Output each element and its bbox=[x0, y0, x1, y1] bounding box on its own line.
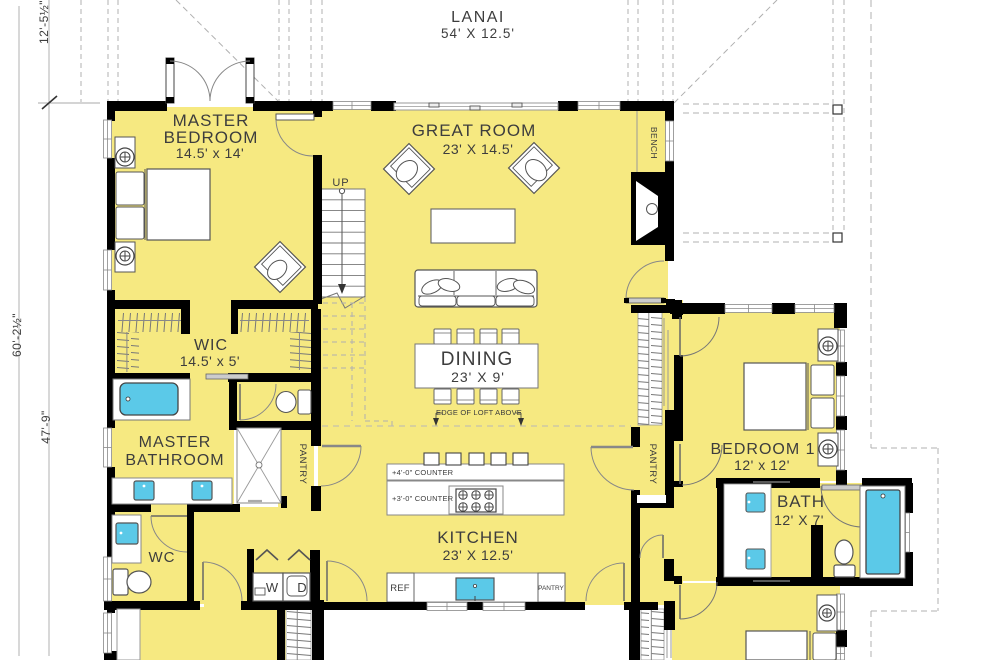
svg-text:D: D bbox=[297, 580, 306, 595]
svg-text:DINING: DINING bbox=[441, 349, 514, 370]
svg-text:LANAI: LANAI bbox=[451, 9, 505, 26]
svg-text:BATH: BATH bbox=[777, 492, 825, 511]
svg-text:12'-5½": 12'-5½" bbox=[37, 0, 51, 44]
svg-text:+3'-0" COUNTER: +3'-0" COUNTER bbox=[392, 494, 454, 503]
svg-text:47'-9": 47'-9" bbox=[39, 410, 53, 444]
svg-text:REF: REF bbox=[390, 583, 410, 594]
svg-text:BEDROOM 1: BEDROOM 1 bbox=[710, 441, 815, 458]
svg-text:WIC: WIC bbox=[194, 337, 228, 354]
svg-text:GREAT ROOM: GREAT ROOM bbox=[412, 121, 537, 140]
svg-text:PANTRY: PANTRY bbox=[297, 444, 308, 485]
svg-text:WC: WC bbox=[149, 549, 176, 566]
svg-text:12' x 12': 12' x 12' bbox=[734, 457, 790, 473]
svg-text:UP: UP bbox=[332, 177, 349, 189]
svg-text:PANTRY: PANTRY bbox=[538, 585, 564, 592]
svg-text:MASTER: MASTER bbox=[139, 434, 212, 451]
svg-text:14.5' x 14': 14.5' x 14' bbox=[176, 145, 244, 161]
svg-text:W: W bbox=[266, 580, 279, 595]
svg-text:BATHROOM: BATHROOM bbox=[125, 452, 224, 469]
svg-text:BENCH: BENCH bbox=[649, 127, 659, 159]
svg-text:12' X 7': 12' X 7' bbox=[774, 512, 824, 528]
svg-text:23' X 14.5': 23' X 14.5' bbox=[443, 141, 514, 157]
svg-text:14.5' x 5': 14.5' x 5' bbox=[180, 353, 240, 369]
svg-text:54' X 12.5': 54' X 12.5' bbox=[441, 26, 515, 41]
svg-text:60'-2½": 60'-2½" bbox=[10, 313, 24, 357]
svg-text:23' X 9': 23' X 9' bbox=[451, 369, 505, 385]
svg-text:+4'-0" COUNTER: +4'-0" COUNTER bbox=[392, 468, 454, 477]
svg-text:EDGE OF LOFT ABOVE: EDGE OF LOFT ABOVE bbox=[436, 408, 522, 417]
svg-text:23' X 12.5': 23' X 12.5' bbox=[443, 547, 514, 563]
svg-text:KITCHEN: KITCHEN bbox=[437, 528, 519, 547]
svg-text:PANTRY: PANTRY bbox=[647, 444, 658, 485]
